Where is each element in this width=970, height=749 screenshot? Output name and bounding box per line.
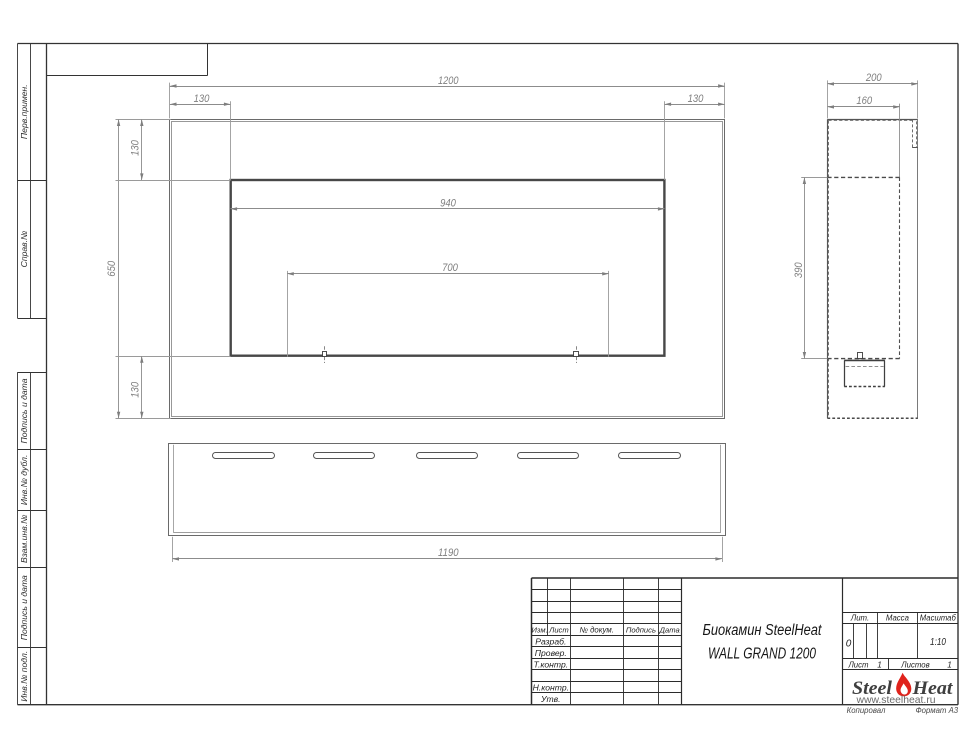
- svg-text:Провер.: Провер.: [535, 648, 567, 658]
- svg-text:1: 1: [947, 660, 952, 669]
- svg-text:160: 160: [856, 95, 872, 107]
- svg-text:WALL GRAND 1200: WALL GRAND 1200: [708, 646, 816, 663]
- svg-text:390: 390: [793, 262, 805, 278]
- svg-text:№ докум.: № докум.: [580, 626, 614, 635]
- svg-text:Формат А3: Формат А3: [915, 706, 958, 715]
- svg-text:130: 130: [194, 93, 210, 105]
- svg-text:Разраб.: Разраб.: [535, 636, 566, 646]
- svg-text:Т.контр.: Т.контр.: [533, 659, 568, 669]
- svg-text:Листов: Листов: [900, 660, 929, 669]
- svg-text:Подпись: Подпись: [626, 626, 656, 635]
- svg-text:130: 130: [130, 140, 142, 156]
- svg-text:Масштаб: Масштаб: [920, 614, 957, 623]
- svg-text:Биокамин SteelHeat: Биокамин SteelHeat: [703, 622, 823, 639]
- svg-text:0: 0: [846, 639, 852, 650]
- svg-text:Масса: Масса: [886, 614, 910, 623]
- svg-text:650: 650: [106, 261, 118, 277]
- svg-text:130: 130: [688, 93, 704, 105]
- svg-text:940: 940: [440, 197, 456, 209]
- svg-text:Взам.инв.№: Взам.инв.№: [19, 515, 29, 563]
- svg-text:Дата: Дата: [659, 626, 680, 635]
- svg-text:1200: 1200: [438, 75, 459, 87]
- svg-text:1:10: 1:10: [930, 636, 946, 648]
- svg-text:www.steelheat.ru: www.steelheat.ru: [855, 695, 935, 706]
- svg-text:Лист: Лист: [847, 660, 869, 669]
- svg-text:Перв.примен.: Перв.примен.: [19, 84, 29, 139]
- svg-text:Копировал: Копировал: [847, 706, 886, 715]
- svg-text:Изм.: Изм.: [531, 626, 547, 635]
- svg-text:1190: 1190: [438, 547, 459, 559]
- svg-text:Инв.№ подл.: Инв.№ подл.: [19, 651, 29, 702]
- svg-text:130: 130: [130, 382, 142, 398]
- svg-text:700: 700: [442, 262, 458, 274]
- svg-text:Инв.№ дубл.: Инв.№ дубл.: [19, 455, 29, 505]
- svg-text:200: 200: [865, 72, 882, 84]
- svg-text:Н.контр.: Н.контр.: [533, 683, 569, 693]
- svg-text:Справ.№: Справ.№: [19, 231, 29, 268]
- svg-text:Лит.: Лит.: [850, 614, 869, 623]
- svg-text:Подпись и дата: Подпись и дата: [19, 575, 29, 640]
- svg-text:1: 1: [877, 660, 882, 669]
- svg-text:Утв.: Утв.: [540, 694, 561, 704]
- svg-text:Лист: Лист: [548, 626, 569, 635]
- svg-text:Подпись и дата: Подпись и дата: [19, 378, 29, 443]
